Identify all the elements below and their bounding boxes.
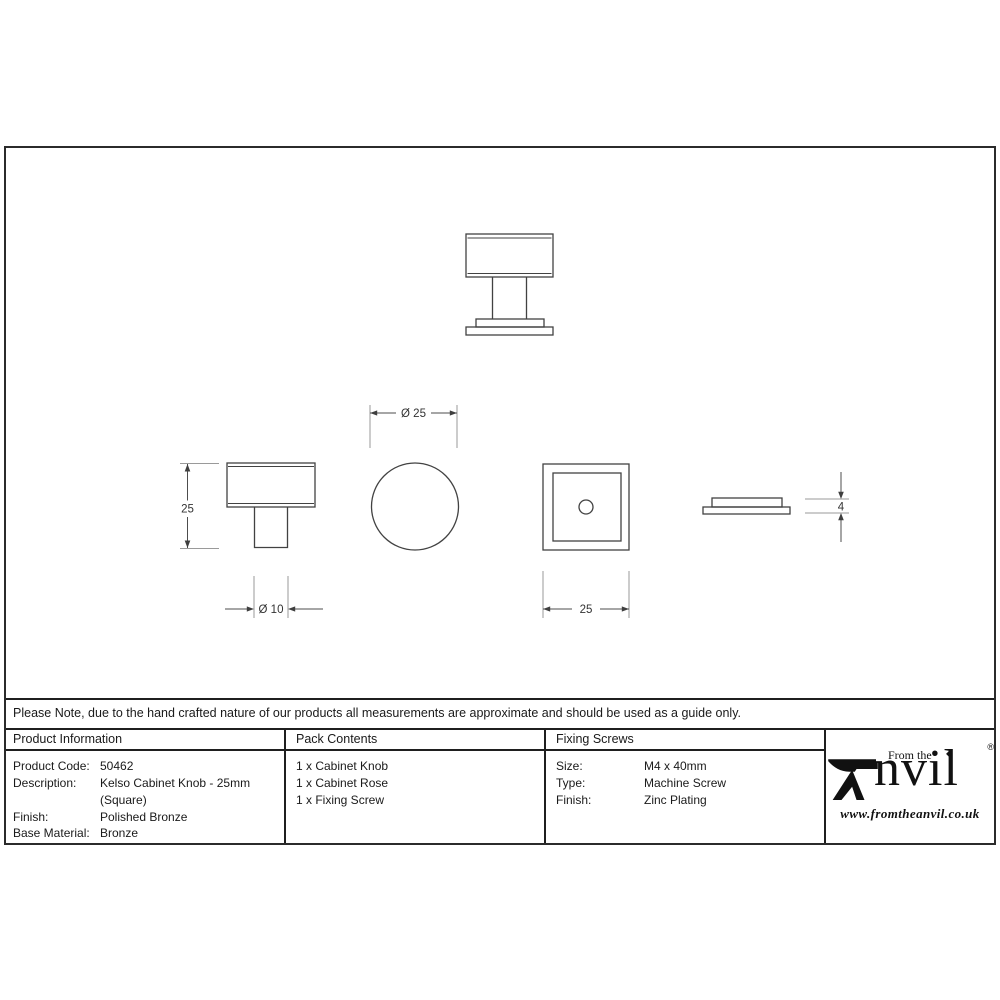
sheet-frame: 25 Ø 10 Ø 25 — [4, 146, 996, 845]
product-information-header: Product Information — [13, 732, 122, 746]
brand-website: www.fromtheanvil.co.uk — [828, 806, 992, 822]
dim-label-rose-width: 25 — [580, 604, 593, 616]
screw-finish-value: Zinc Plating — [644, 793, 707, 807]
dimension-stem-diameter: Ø 10 — [225, 576, 323, 618]
dim-label-rose-thickness: 4 — [838, 502, 845, 514]
logo-tagline: From the — [888, 748, 932, 763]
screw-type-label: Type: — [556, 776, 585, 790]
product-code-row: Product Code: 50462 — [13, 759, 283, 773]
product-spec-sheet: 25 Ø 10 Ø 25 — [0, 0, 1000, 1000]
screw-finish-label: Finish: — [556, 793, 591, 807]
description-value: Kelso Cabinet Knob - 25mm — [100, 776, 250, 790]
registered-trademark-icon: ® — [987, 742, 994, 752]
finish-label: Finish: — [13, 810, 48, 824]
assembled-view — [466, 234, 553, 335]
finish-value: Polished Bronze — [100, 810, 187, 824]
column-divider — [544, 730, 546, 843]
screw-finish-row: Finish: Zinc Plating — [556, 793, 816, 807]
product-code-label: Product Code: — [13, 759, 90, 773]
knob-front-view — [227, 463, 315, 548]
rose-top-view — [543, 464, 629, 550]
screw-size-label: Size: — [556, 759, 583, 773]
diamond-icon: ◆ — [946, 749, 952, 758]
brand-logo-cell: nvil From the ◆ ® www.fromtheanvil.co.uk — [826, 730, 994, 843]
base-material-label: Base Material: — [13, 826, 90, 840]
base-material-value: Bronze — [100, 826, 138, 840]
pack-item: 1 x Cabinet Knob — [296, 759, 388, 773]
from-the-anvil-logo: nvil From the ◆ ® www.fromtheanvil.co.uk — [828, 746, 992, 828]
dimension-rose-width: 25 — [543, 571, 629, 618]
screw-size-value: M4 x 40mm — [644, 759, 707, 773]
column-divider — [284, 730, 286, 843]
description-label: Description: — [13, 776, 76, 790]
measurement-note: Please Note, due to the hand crafted nat… — [6, 698, 994, 728]
screw-type-row: Type: Machine Screw — [556, 776, 816, 790]
dimension-rose-thickness: 4 — [805, 472, 849, 542]
dimension-overall-height: 25 — [180, 464, 219, 549]
knob-top-view — [372, 463, 459, 550]
dimension-knob-diameter: Ø 25 — [370, 405, 457, 448]
dim-label-height: 25 — [181, 504, 194, 516]
fixing-screws-header: Fixing Screws — [556, 732, 634, 746]
rose-side-view — [703, 498, 790, 514]
pack-item: 1 x Fixing Screw — [296, 793, 384, 807]
description-value-2: (Square) — [100, 793, 147, 807]
pack-item: 1 x Cabinet Rose — [296, 776, 388, 790]
spec-table: Product Information Pack Contents Fixing… — [6, 728, 994, 843]
logo-wordmark: nvil From the ◆ ® — [828, 746, 992, 806]
technical-drawing: 25 Ø 10 Ø 25 — [6, 148, 994, 698]
pack-contents-header: Pack Contents — [296, 732, 377, 746]
screw-type-value: Machine Screw — [644, 776, 726, 790]
screw-size-row: Size: M4 x 40mm — [556, 759, 816, 773]
description-row: Description: Kelso Cabinet Knob - 25mm — [13, 776, 283, 790]
base-material-row: Base Material: Bronze — [13, 826, 283, 840]
dim-label-knob-diameter: Ø 25 — [401, 408, 426, 420]
finish-row: Finish: Polished Bronze — [13, 810, 283, 824]
header-divider — [6, 749, 824, 751]
product-code-value: 50462 — [100, 759, 133, 773]
anvil-icon — [828, 754, 878, 800]
dim-label-stem-diameter: Ø 10 — [259, 604, 284, 616]
